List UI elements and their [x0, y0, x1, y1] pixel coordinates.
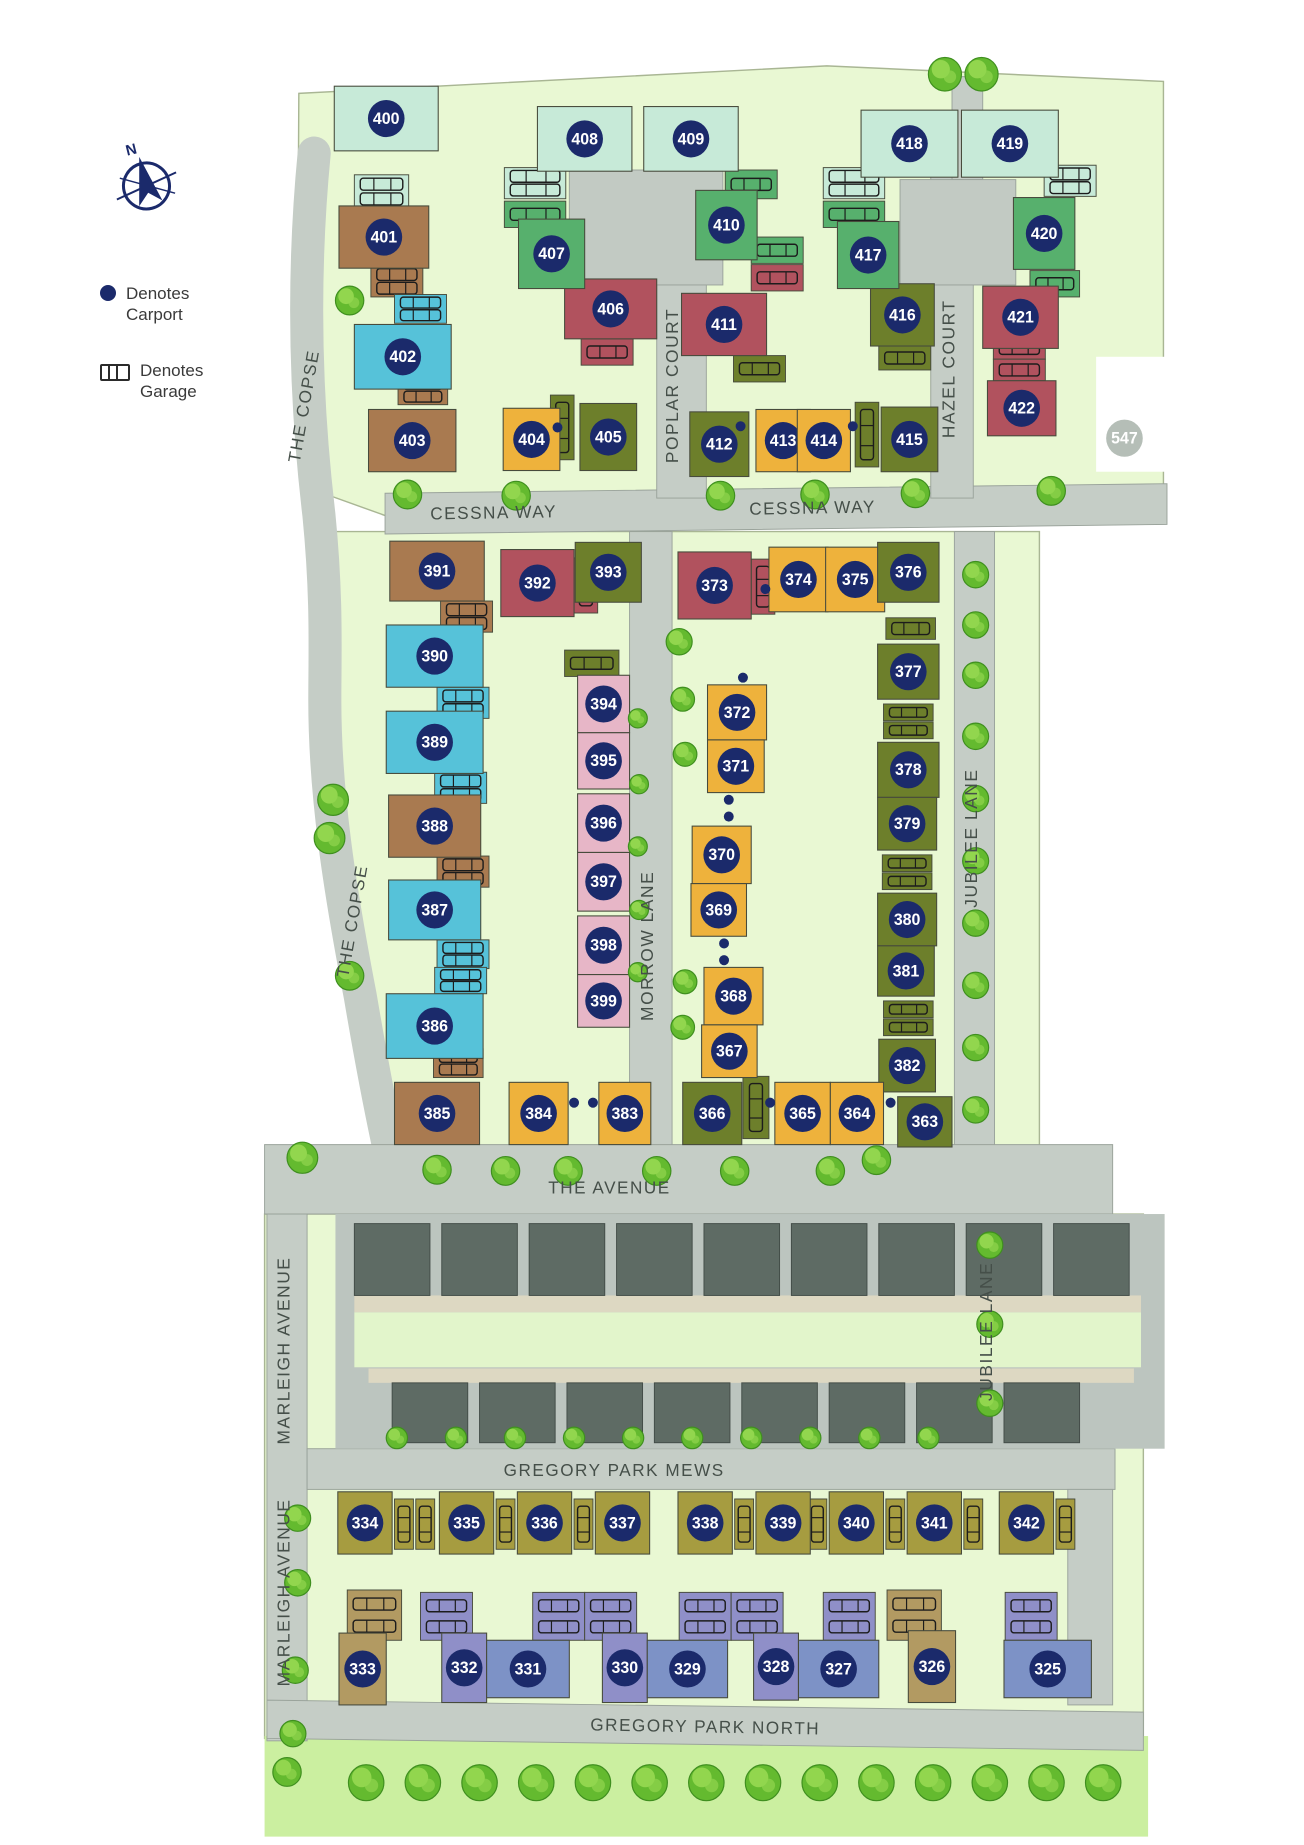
plot-333[interactable]: 333 — [339, 1633, 386, 1705]
street-label-morrow-lane: MORROW LANE — [637, 871, 657, 1021]
legend-carport-label: Denotes Carport — [126, 283, 202, 326]
carport-dot — [760, 584, 770, 594]
svg-text:335: 335 — [453, 1514, 480, 1532]
svg-text:416: 416 — [889, 306, 916, 324]
svg-text:400: 400 — [373, 110, 400, 128]
plot-393[interactable]: 393 — [575, 542, 641, 602]
garage-block — [565, 650, 619, 676]
carport-dot — [719, 955, 729, 965]
garage-block — [884, 704, 934, 721]
svg-text:399: 399 — [590, 992, 617, 1010]
tree-icon — [977, 1232, 1003, 1258]
plot-547[interactable]: 547 — [1106, 420, 1143, 457]
plot-395[interactable]: 395 — [578, 733, 630, 789]
tree-icon — [671, 1015, 695, 1039]
plot-366[interactable]: 366 — [683, 1082, 742, 1144]
tree-icon — [280, 1720, 306, 1746]
garage-block — [884, 1001, 934, 1018]
terrace-house — [791, 1224, 867, 1296]
plot-415[interactable]: 415 — [881, 407, 938, 472]
garage-block — [533, 1592, 585, 1640]
svg-text:397: 397 — [590, 873, 617, 891]
svg-text:414: 414 — [811, 432, 838, 450]
terrace-house — [529, 1224, 605, 1296]
street-label-the-avenue: THE AVENUE — [548, 1178, 671, 1198]
plot-419[interactable]: 419 — [961, 110, 1058, 177]
tree-icon — [972, 1765, 1007, 1801]
garage-block — [496, 1499, 515, 1549]
svg-text:377: 377 — [895, 663, 922, 681]
tree-icon — [963, 612, 989, 638]
svg-text:338: 338 — [692, 1514, 719, 1532]
courtyard — [900, 180, 1016, 285]
svg-text:547: 547 — [1111, 429, 1138, 447]
svg-text:396: 396 — [590, 814, 617, 832]
svg-text:405: 405 — [595, 428, 622, 446]
tree-icon — [273, 1758, 301, 1787]
svg-text:330: 330 — [612, 1659, 639, 1677]
tree-icon — [462, 1765, 497, 1801]
plot-339[interactable]: 339 — [756, 1492, 810, 1554]
plot-404[interactable]: 404 — [503, 408, 560, 470]
svg-text:339: 339 — [770, 1514, 797, 1532]
svg-text:402: 402 — [389, 348, 416, 366]
legend-garage: Denotes Garage — [100, 360, 220, 403]
tree-icon — [963, 972, 989, 998]
street-label-gregory-park-mews: GREGORY PARK MEWS — [504, 1460, 725, 1480]
plot-365[interactable]: 365 — [775, 1082, 831, 1144]
tree-icon — [632, 1765, 667, 1801]
svg-text:390: 390 — [421, 647, 448, 665]
terrace-rear-strip — [369, 1368, 1134, 1382]
street-label-hazel-court: HAZEL COURT — [938, 299, 958, 438]
svg-text:421: 421 — [1007, 309, 1034, 327]
garage-block — [395, 1499, 414, 1549]
svg-text:381: 381 — [893, 962, 920, 980]
garage-block — [437, 940, 489, 969]
tree-icon — [491, 1157, 519, 1186]
tree-icon — [348, 1765, 383, 1801]
svg-text:370: 370 — [708, 846, 735, 864]
svg-text:384: 384 — [525, 1105, 552, 1123]
terrace-house — [1004, 1383, 1080, 1443]
garage-block — [734, 356, 786, 382]
terrace-house — [704, 1224, 780, 1296]
plot-390[interactable]: 390 — [386, 625, 483, 687]
svg-text:403: 403 — [399, 432, 426, 450]
svg-text:372: 372 — [724, 704, 751, 722]
garage-block — [574, 1499, 593, 1549]
plot-331[interactable]: 331 — [487, 1640, 570, 1697]
legend-garage-label: Denotes Garage — [140, 360, 216, 403]
tree-icon — [721, 1157, 749, 1186]
tree-icon — [1037, 477, 1065, 506]
tree-icon — [519, 1765, 554, 1801]
page: { "legend": {"north":"N","carport":"Deno… — [0, 0, 1304, 1845]
plot-335[interactable]: 335 — [439, 1492, 493, 1554]
terrace-rear-strip — [354, 1295, 1141, 1312]
garage-block — [743, 1076, 769, 1138]
svg-text:413: 413 — [770, 432, 797, 450]
plot-379[interactable]: 379 — [878, 797, 937, 850]
carport-dot — [724, 795, 734, 805]
garage-block — [886, 1499, 905, 1549]
carport-dot — [858, 584, 868, 594]
tree-icon — [689, 1765, 724, 1801]
svg-text:373: 373 — [701, 577, 728, 595]
tree-icon — [314, 823, 345, 854]
carport-dot — [569, 1098, 579, 1108]
svg-text:331: 331 — [515, 1660, 542, 1678]
svg-text:342: 342 — [1013, 1514, 1040, 1532]
street-label-cessna-way: CESSNA WAY — [749, 496, 876, 518]
plot-340[interactable]: 340 — [829, 1492, 883, 1554]
plot-373[interactable]: 373 — [678, 552, 751, 619]
tree-icon — [963, 1097, 989, 1123]
map-legend: N Denotes Carport Denotes Garage — [100, 130, 220, 402]
svg-text:393: 393 — [595, 564, 622, 582]
svg-text:325: 325 — [1034, 1660, 1061, 1678]
svg-text:378: 378 — [895, 761, 922, 779]
tree-icon — [965, 57, 998, 91]
tree-icon — [859, 1765, 894, 1801]
tree-icon — [386, 1427, 407, 1449]
garage-block — [884, 1019, 934, 1036]
carport-dot — [553, 422, 563, 432]
svg-text:328: 328 — [763, 1658, 790, 1676]
plot-374[interactable]: 374 — [769, 547, 828, 612]
svg-text:327: 327 — [825, 1660, 852, 1678]
svg-text:392: 392 — [524, 574, 551, 592]
svg-text:367: 367 — [716, 1043, 743, 1061]
svg-text:385: 385 — [424, 1105, 451, 1123]
carport-dot — [736, 421, 746, 431]
plot-417[interactable]: 417 — [837, 221, 898, 288]
tree-icon — [628, 837, 647, 856]
plot-327[interactable]: 327 — [798, 1640, 878, 1697]
svg-text:386: 386 — [421, 1017, 448, 1035]
plot-392[interactable]: 392 — [501, 550, 574, 617]
svg-text:374: 374 — [785, 571, 812, 589]
carport-dot — [719, 938, 729, 948]
plot-376[interactable]: 376 — [878, 542, 939, 602]
tree-icon — [287, 1142, 318, 1173]
tree-icon — [393, 480, 421, 509]
plot-421[interactable]: 421 — [983, 286, 1059, 348]
plot-386[interactable]: 386 — [386, 994, 483, 1059]
plot-369[interactable]: 369 — [691, 884, 747, 937]
tree-icon — [963, 1034, 989, 1060]
tree-icon — [622, 1427, 643, 1449]
svg-text:383: 383 — [612, 1105, 639, 1123]
terrace-house — [1054, 1224, 1130, 1296]
plot-416[interactable]: 416 — [871, 284, 935, 346]
svg-text:365: 365 — [789, 1105, 816, 1123]
svg-text:363: 363 — [912, 1113, 939, 1131]
garage-block — [751, 265, 803, 291]
plot-408[interactable]: 408 — [537, 107, 631, 172]
street-label-cessna-way: CESSNA WAY — [430, 501, 557, 523]
plot-385[interactable]: 385 — [395, 1082, 480, 1144]
plot-409[interactable]: 409 — [644, 107, 738, 172]
tree-icon — [928, 57, 961, 91]
plot-391[interactable]: 391 — [390, 541, 484, 601]
plot-418[interactable]: 418 — [861, 110, 958, 177]
svg-text:332: 332 — [451, 1659, 478, 1677]
street-label-marleigh-avenue: MARLEIGH AVENUE — [273, 1257, 293, 1445]
carport-dot — [724, 812, 734, 822]
garage-block — [735, 1499, 754, 1549]
tree-icon — [963, 910, 989, 936]
carport-dot — [861, 1098, 871, 1108]
svg-text:379: 379 — [894, 815, 921, 833]
svg-text:412: 412 — [706, 435, 733, 453]
tree-icon — [859, 1427, 880, 1449]
plot-368[interactable]: 368 — [704, 967, 763, 1024]
garage-block — [823, 1592, 875, 1640]
garage-block — [581, 339, 633, 365]
svg-text:N: N — [124, 140, 139, 159]
garage-block — [879, 346, 931, 370]
plot-398[interactable]: 398 — [578, 916, 630, 975]
garage-block — [886, 618, 936, 640]
tree-icon — [673, 970, 697, 994]
plot-394[interactable]: 394 — [578, 675, 630, 732]
plot-375[interactable]: 375 — [826, 547, 885, 612]
svg-text:398: 398 — [590, 937, 617, 955]
tree-icon — [318, 784, 349, 815]
svg-text:420: 420 — [1031, 225, 1058, 243]
tree-icon — [423, 1155, 451, 1184]
svg-text:404: 404 — [518, 431, 545, 449]
tree-icon — [800, 1427, 821, 1449]
plot-342[interactable]: 342 — [999, 1492, 1053, 1554]
svg-text:382: 382 — [894, 1057, 921, 1075]
tree-icon — [1085, 1765, 1120, 1801]
carport-dot — [738, 673, 748, 683]
svg-text:369: 369 — [705, 901, 732, 919]
tree-icon — [963, 562, 989, 588]
compass-icon: N — [106, 130, 184, 226]
carport-dot-icon — [100, 285, 116, 301]
plot-332[interactable]: 332 — [442, 1633, 487, 1702]
plot-403[interactable]: 403 — [369, 409, 456, 471]
plot-378[interactable]: 378 — [878, 742, 939, 797]
svg-text:408: 408 — [571, 130, 598, 148]
garage-block — [964, 1499, 983, 1549]
svg-text:411: 411 — [711, 316, 737, 334]
garage-block — [882, 873, 932, 890]
carport-dot — [588, 1098, 598, 1108]
plot-396[interactable]: 396 — [578, 794, 630, 853]
plot-422[interactable]: 422 — [987, 381, 1056, 436]
plot-338[interactable]: 338 — [678, 1492, 732, 1554]
plot-330[interactable]: 330 — [602, 1633, 647, 1702]
plot-337[interactable]: 337 — [595, 1492, 649, 1554]
street-label-jubilee-lane: JUBILEE LANE — [976, 1262, 996, 1401]
tree-icon — [816, 1157, 844, 1186]
garage-block — [679, 1592, 731, 1640]
plot-410[interactable]: 410 — [696, 190, 757, 259]
tree-icon — [963, 662, 989, 688]
tree-icon — [741, 1427, 762, 1449]
svg-text:337: 337 — [609, 1514, 636, 1532]
tree-icon — [682, 1427, 703, 1449]
plot-414[interactable]: 414 — [797, 409, 850, 471]
the-avenue-road — [265, 1145, 1113, 1214]
plot-336[interactable]: 336 — [517, 1492, 571, 1554]
carport-dot — [848, 421, 858, 431]
plot-364[interactable]: 364 — [830, 1082, 883, 1144]
garage-block — [1056, 1499, 1075, 1549]
terrace-house — [442, 1224, 518, 1296]
plot-405[interactable]: 405 — [580, 403, 637, 470]
tree-icon — [706, 481, 734, 510]
street-label-poplar-court: POPLAR COURT — [662, 308, 682, 463]
street-label-jubilee-lane: JUBILEE LANE — [961, 768, 981, 907]
plot-381[interactable]: 381 — [878, 946, 935, 996]
garage-block — [884, 722, 934, 739]
svg-text:422: 422 — [1008, 400, 1035, 418]
garage-block — [354, 175, 408, 209]
garage-block — [504, 168, 565, 199]
svg-text:340: 340 — [843, 1514, 870, 1532]
svg-text:417: 417 — [855, 246, 882, 264]
garage-block — [395, 295, 447, 324]
plot-383[interactable]: 383 — [599, 1082, 651, 1144]
tree-icon — [445, 1427, 466, 1449]
plot-399[interactable]: 399 — [578, 975, 630, 1028]
plot-363[interactable]: 363 — [898, 1097, 952, 1147]
garage-block — [882, 855, 932, 872]
svg-text:394: 394 — [590, 695, 617, 713]
white-notch — [1096, 357, 1186, 472]
legend-carport: Denotes Carport — [100, 283, 220, 326]
plot-325[interactable]: 325 — [1004, 1640, 1091, 1697]
plot-397[interactable]: 397 — [578, 852, 630, 911]
terrace-house — [879, 1224, 955, 1296]
svg-text:415: 415 — [896, 431, 923, 449]
tree-icon — [405, 1765, 440, 1801]
svg-text:366: 366 — [699, 1105, 726, 1123]
tree-icon — [963, 723, 989, 749]
svg-text:401: 401 — [371, 228, 398, 246]
garage-block — [416, 1499, 435, 1549]
garage-block — [371, 266, 423, 297]
tree-icon — [918, 1427, 939, 1449]
plot-420[interactable]: 420 — [1013, 198, 1074, 270]
svg-text:376: 376 — [895, 564, 922, 582]
tree-icon — [915, 1765, 950, 1801]
plot-380[interactable]: 380 — [878, 893, 937, 946]
svg-text:418: 418 — [896, 135, 923, 153]
plot-326[interactable]: 326 — [908, 1631, 955, 1703]
svg-text:391: 391 — [424, 562, 451, 580]
svg-text:389: 389 — [421, 734, 448, 752]
svg-text:336: 336 — [531, 1514, 558, 1532]
svg-text:388: 388 — [421, 817, 448, 835]
svg-text:329: 329 — [674, 1660, 701, 1678]
tree-icon — [745, 1765, 780, 1801]
plot-389[interactable]: 389 — [386, 711, 483, 773]
tree-icon — [862, 1146, 890, 1175]
svg-text:419: 419 — [997, 135, 1024, 153]
plot-388[interactable]: 388 — [389, 795, 481, 857]
street-label-gregory-park-north: GREGORY PARK NORTH — [590, 1714, 820, 1738]
tree-icon — [673, 742, 697, 766]
plot-384[interactable]: 384 — [509, 1082, 568, 1144]
tree-icon — [575, 1765, 610, 1801]
terrace-house — [354, 1224, 430, 1296]
plot-407[interactable]: 407 — [519, 219, 585, 288]
tree-icon — [630, 775, 649, 794]
carport-dot — [886, 1098, 896, 1108]
plot-329[interactable]: 329 — [647, 1640, 727, 1697]
tree-icon — [1029, 1765, 1064, 1801]
svg-text:371: 371 — [723, 758, 750, 776]
plot-341[interactable]: 341 — [907, 1492, 961, 1554]
svg-text:387: 387 — [421, 901, 448, 919]
tree-icon — [504, 1427, 525, 1449]
plot-371[interactable]: 371 — [708, 740, 765, 793]
plot-328[interactable]: 328 — [754, 1633, 799, 1700]
garage-block — [1005, 1592, 1057, 1640]
svg-text:333: 333 — [349, 1660, 376, 1678]
plot-401[interactable]: 401 — [339, 206, 429, 268]
plot-370[interactable]: 370 — [692, 826, 751, 883]
garage-block — [993, 359, 1045, 381]
svg-text:326: 326 — [919, 1658, 946, 1676]
svg-text:334: 334 — [352, 1514, 379, 1532]
svg-text:407: 407 — [538, 245, 565, 263]
svg-text:406: 406 — [597, 300, 624, 318]
plot-377[interactable]: 377 — [878, 644, 939, 699]
garage-icon — [100, 364, 130, 381]
svg-text:409: 409 — [678, 130, 705, 148]
plot-372[interactable]: 372 — [708, 685, 767, 740]
svg-text:395: 395 — [590, 752, 617, 770]
plot-334[interactable]: 334 — [338, 1492, 392, 1554]
plot-411[interactable]: 411 — [682, 293, 767, 355]
plot-387[interactable]: 387 — [389, 880, 481, 940]
tree-icon — [802, 1765, 837, 1801]
plot-367[interactable]: 367 — [702, 1025, 758, 1078]
svg-text:380: 380 — [894, 911, 921, 929]
svg-text:368: 368 — [720, 987, 747, 1005]
street-label-marleigh-avenue: MARLEIGH AVENUE — [273, 1498, 293, 1686]
tree-icon — [901, 479, 929, 508]
tree-icon — [666, 629, 692, 655]
plot-382[interactable]: 382 — [879, 1039, 936, 1092]
garage-block — [855, 402, 879, 467]
terrace-gardens — [354, 1312, 1141, 1367]
tree-icon — [671, 687, 695, 711]
plot-400[interactable]: 400 — [334, 86, 438, 151]
svg-text:410: 410 — [713, 216, 740, 234]
terrace-house — [617, 1224, 693, 1296]
svg-text:341: 341 — [921, 1514, 948, 1532]
tree-icon — [335, 286, 363, 315]
tree-icon — [628, 709, 647, 728]
tree-icon — [563, 1427, 584, 1449]
carport-dot — [765, 1098, 775, 1108]
garage-block — [435, 967, 487, 993]
garage-block — [751, 237, 803, 263]
plot-402[interactable]: 402 — [354, 324, 451, 389]
